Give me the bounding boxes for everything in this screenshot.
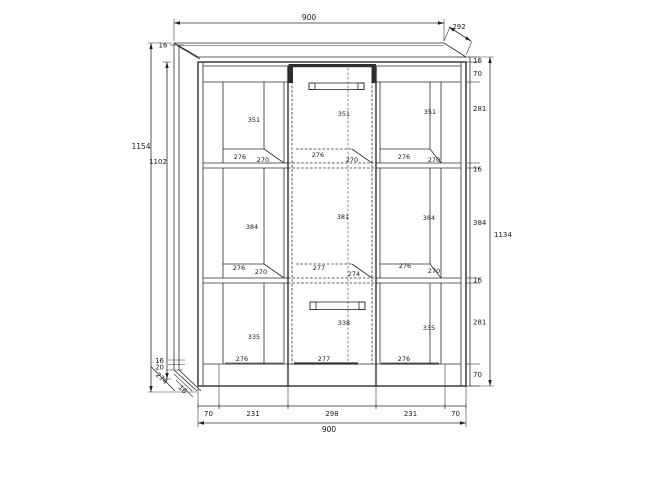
dim-right-chain-6: 281 bbox=[473, 319, 486, 327]
dim-top-depth-label: 292 bbox=[452, 23, 465, 31]
door-handle-top bbox=[309, 83, 364, 90]
r2c3-width: 276 bbox=[399, 262, 411, 270]
right-column-interior bbox=[380, 82, 441, 364]
r1c2-height: 351 bbox=[338, 110, 350, 118]
r1c1-depth: 270 bbox=[257, 156, 269, 164]
r2c1-height: 384 bbox=[246, 223, 258, 231]
dim-height-inner-label: 1102 bbox=[149, 158, 167, 166]
dim-top-width-label: 900 bbox=[302, 13, 317, 22]
dim-bottom-chain: 70 231 298 231 70 bbox=[198, 364, 466, 427]
r3c3-width: 276 bbox=[398, 355, 410, 363]
dim-bottom-width-label: 900 bbox=[322, 425, 337, 434]
r2c2-depth: 274 bbox=[348, 270, 360, 278]
r3c3-height: 335 bbox=[423, 324, 435, 332]
dim-right-chain-0: 16 bbox=[473, 57, 482, 65]
technical-drawing-page: 900 292 16 1154 1102 bbox=[0, 0, 648, 486]
dim-bottom-chain-2: 298 bbox=[325, 410, 338, 418]
top-panel-perspective bbox=[174, 43, 466, 62]
r3c1-width: 276 bbox=[236, 355, 248, 363]
dim-right-chain-3: 16 bbox=[473, 166, 482, 174]
dim-right-chain-2: 281 bbox=[473, 105, 486, 113]
r2c2-width: 277 bbox=[313, 264, 325, 272]
r1c3-height: 351 bbox=[424, 108, 436, 116]
r2c3-depth: 270 bbox=[428, 267, 440, 275]
compartment-labels-row1: 351 351 351 276 270 276 270 276 270 bbox=[234, 108, 440, 164]
r3c2-width: 277 bbox=[318, 355, 330, 363]
r2c1-width: 276 bbox=[233, 264, 245, 272]
r2c1-depth: 270 bbox=[255, 268, 267, 276]
compartment-labels-row3: 335 338 335 276 277 276 bbox=[236, 319, 435, 363]
dim-height-total: 1154 bbox=[131, 43, 197, 392]
dim-top-depth: 292 bbox=[444, 23, 472, 55]
r3c2-height: 338 bbox=[338, 319, 350, 327]
dim-base-detail: 16 20 274 16 bbox=[154, 357, 189, 396]
left-side-panel-perspective bbox=[174, 43, 201, 391]
r1c2-width: 276 bbox=[312, 151, 324, 159]
dim-right-chain-5: 16 bbox=[473, 277, 482, 285]
dim-bottom-chain-0: 70 bbox=[204, 410, 213, 418]
carcass-horizontal-rails bbox=[203, 82, 461, 365]
dim-bottom-chain-1: 231 bbox=[246, 410, 259, 418]
r1c1-width: 276 bbox=[234, 153, 246, 161]
dim-bottom-width: 900 bbox=[198, 421, 466, 434]
dim-height-inner: 1102 bbox=[149, 62, 171, 379]
door-handle-bottom bbox=[310, 302, 365, 310]
r1c3-depth: 270 bbox=[428, 156, 440, 164]
r2c2-height: 381 bbox=[337, 213, 349, 221]
r1c3-width: 276 bbox=[398, 153, 410, 161]
dim-bottom-chain-3: 231 bbox=[404, 410, 417, 418]
dim-right-chain-4: 384 bbox=[473, 219, 487, 227]
center-door-column bbox=[288, 64, 376, 386]
r3c1-height: 335 bbox=[248, 333, 260, 341]
cabinet-dimension-drawing: 900 292 16 1154 1102 bbox=[0, 0, 648, 486]
r1c1-height: 351 bbox=[248, 116, 260, 124]
dim-height-front-label: 1134 bbox=[494, 231, 512, 239]
r1c2-depth: 270 bbox=[346, 156, 358, 164]
dim-top-width: 900 bbox=[174, 13, 444, 41]
dim-right-chain-7: 70 bbox=[473, 371, 482, 379]
dim-height-total-label: 1154 bbox=[131, 142, 150, 151]
r2c3-height: 384 bbox=[423, 214, 435, 222]
dim-bottom-chain-4: 70 bbox=[451, 410, 460, 418]
dim-base-edge-label: 16 bbox=[176, 384, 188, 396]
dim-right-chain-1: 70 bbox=[473, 70, 482, 78]
